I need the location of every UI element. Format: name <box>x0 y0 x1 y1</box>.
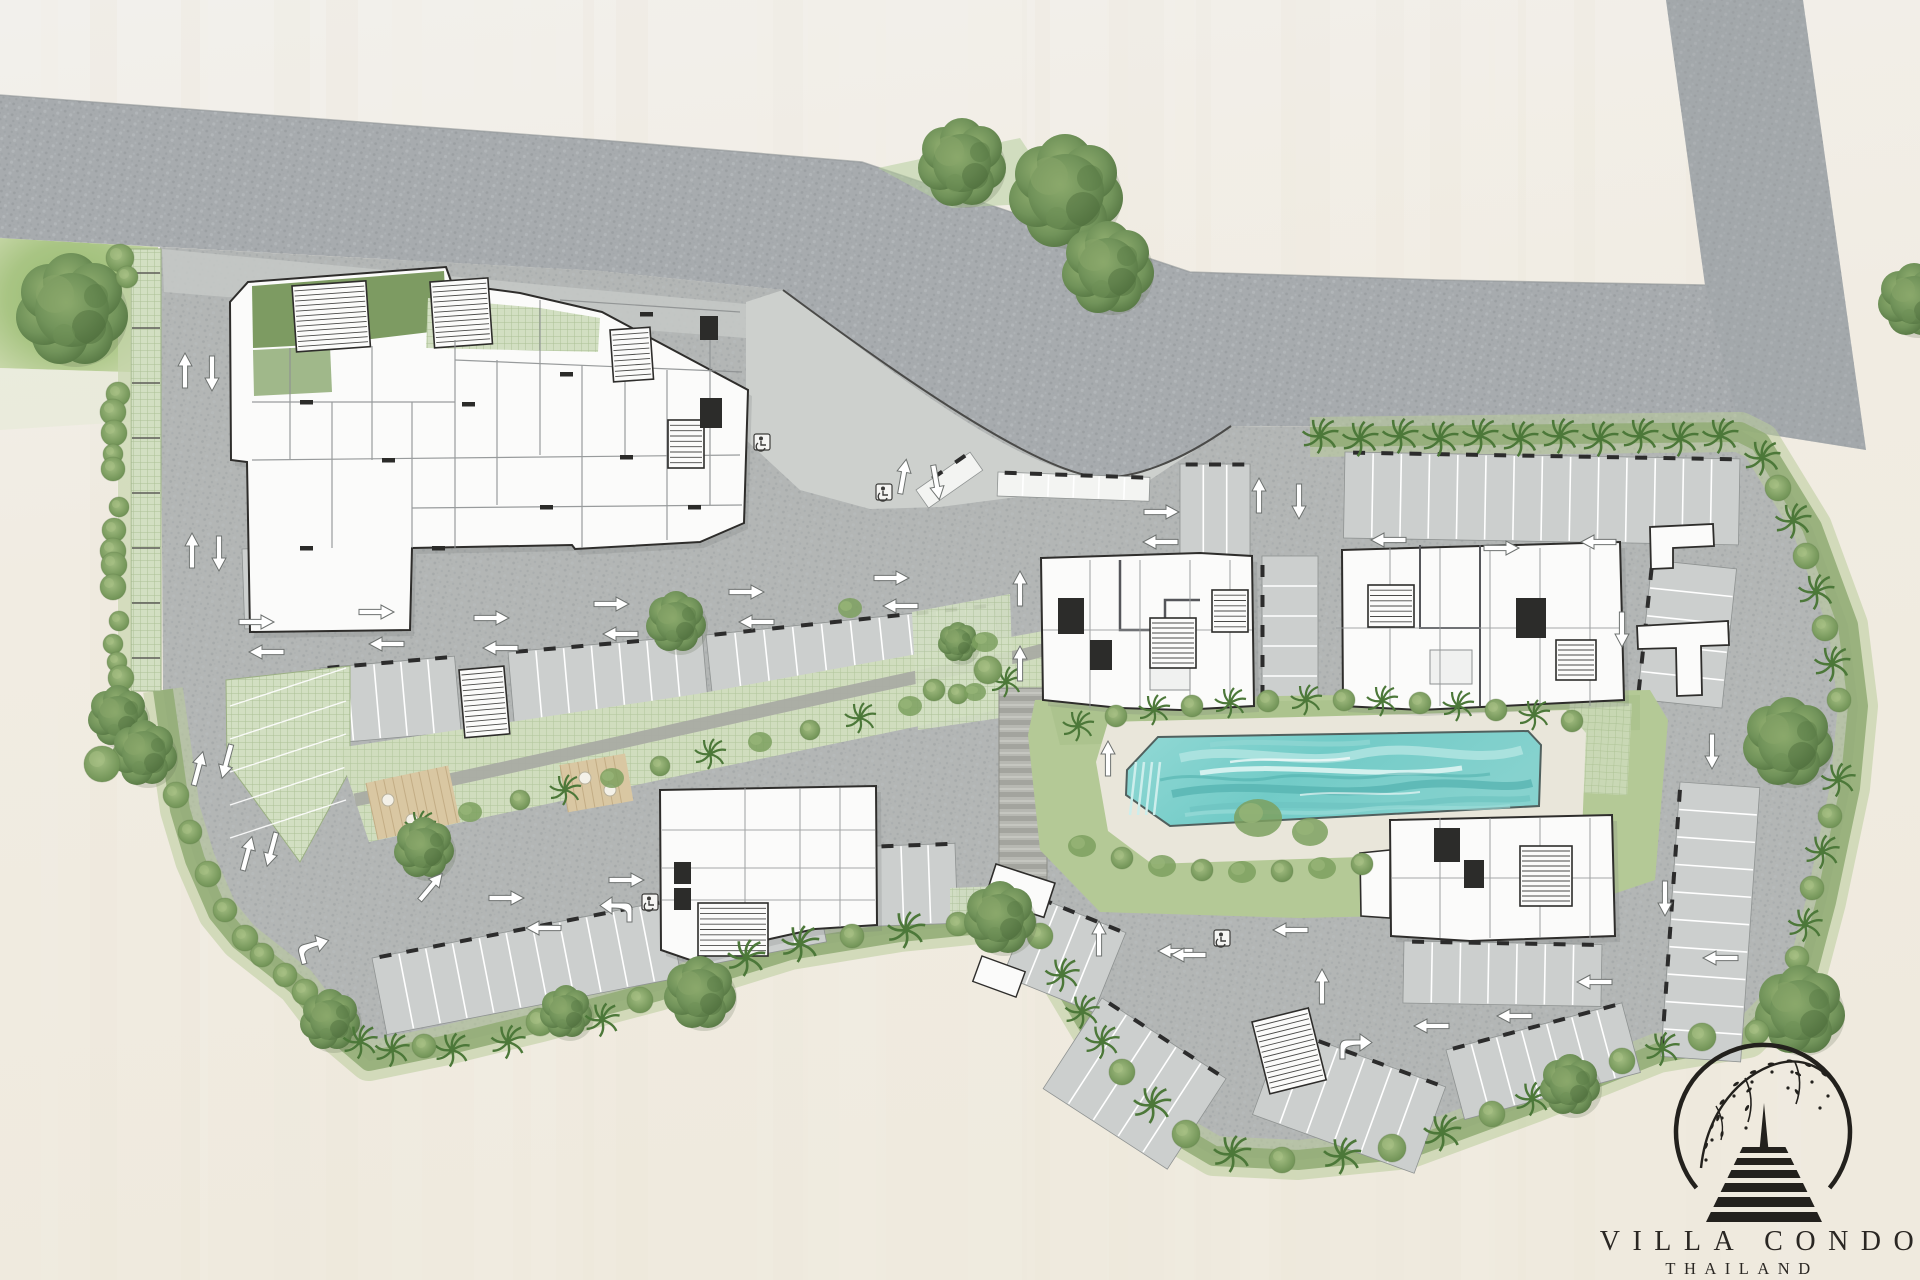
svg-text:VILLA CONDO: VILLA CONDO <box>1600 1226 1920 1257</box>
svg-text:THAILAND: THAILAND <box>1665 1259 1818 1278</box>
